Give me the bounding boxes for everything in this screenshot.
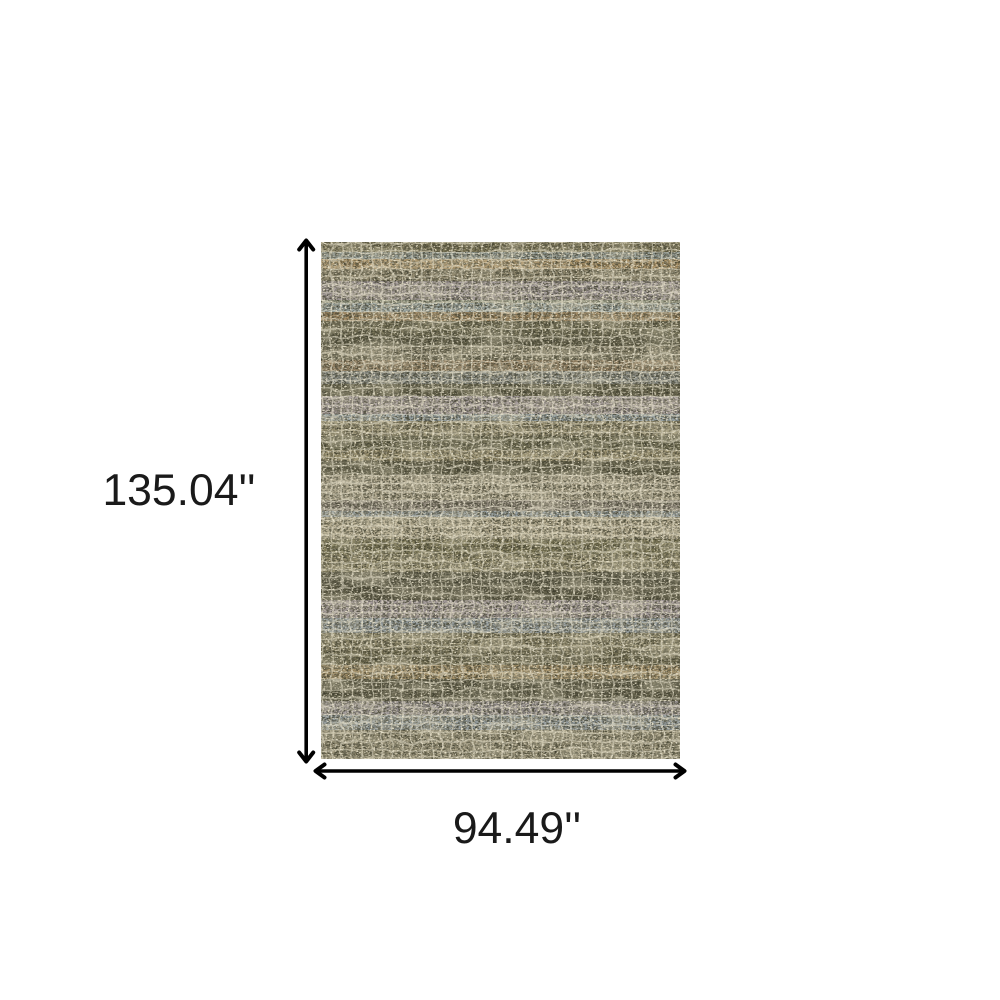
svg-text:94.49'': 94.49'' (453, 804, 581, 853)
svg-text:135.04'': 135.04'' (102, 466, 255, 515)
